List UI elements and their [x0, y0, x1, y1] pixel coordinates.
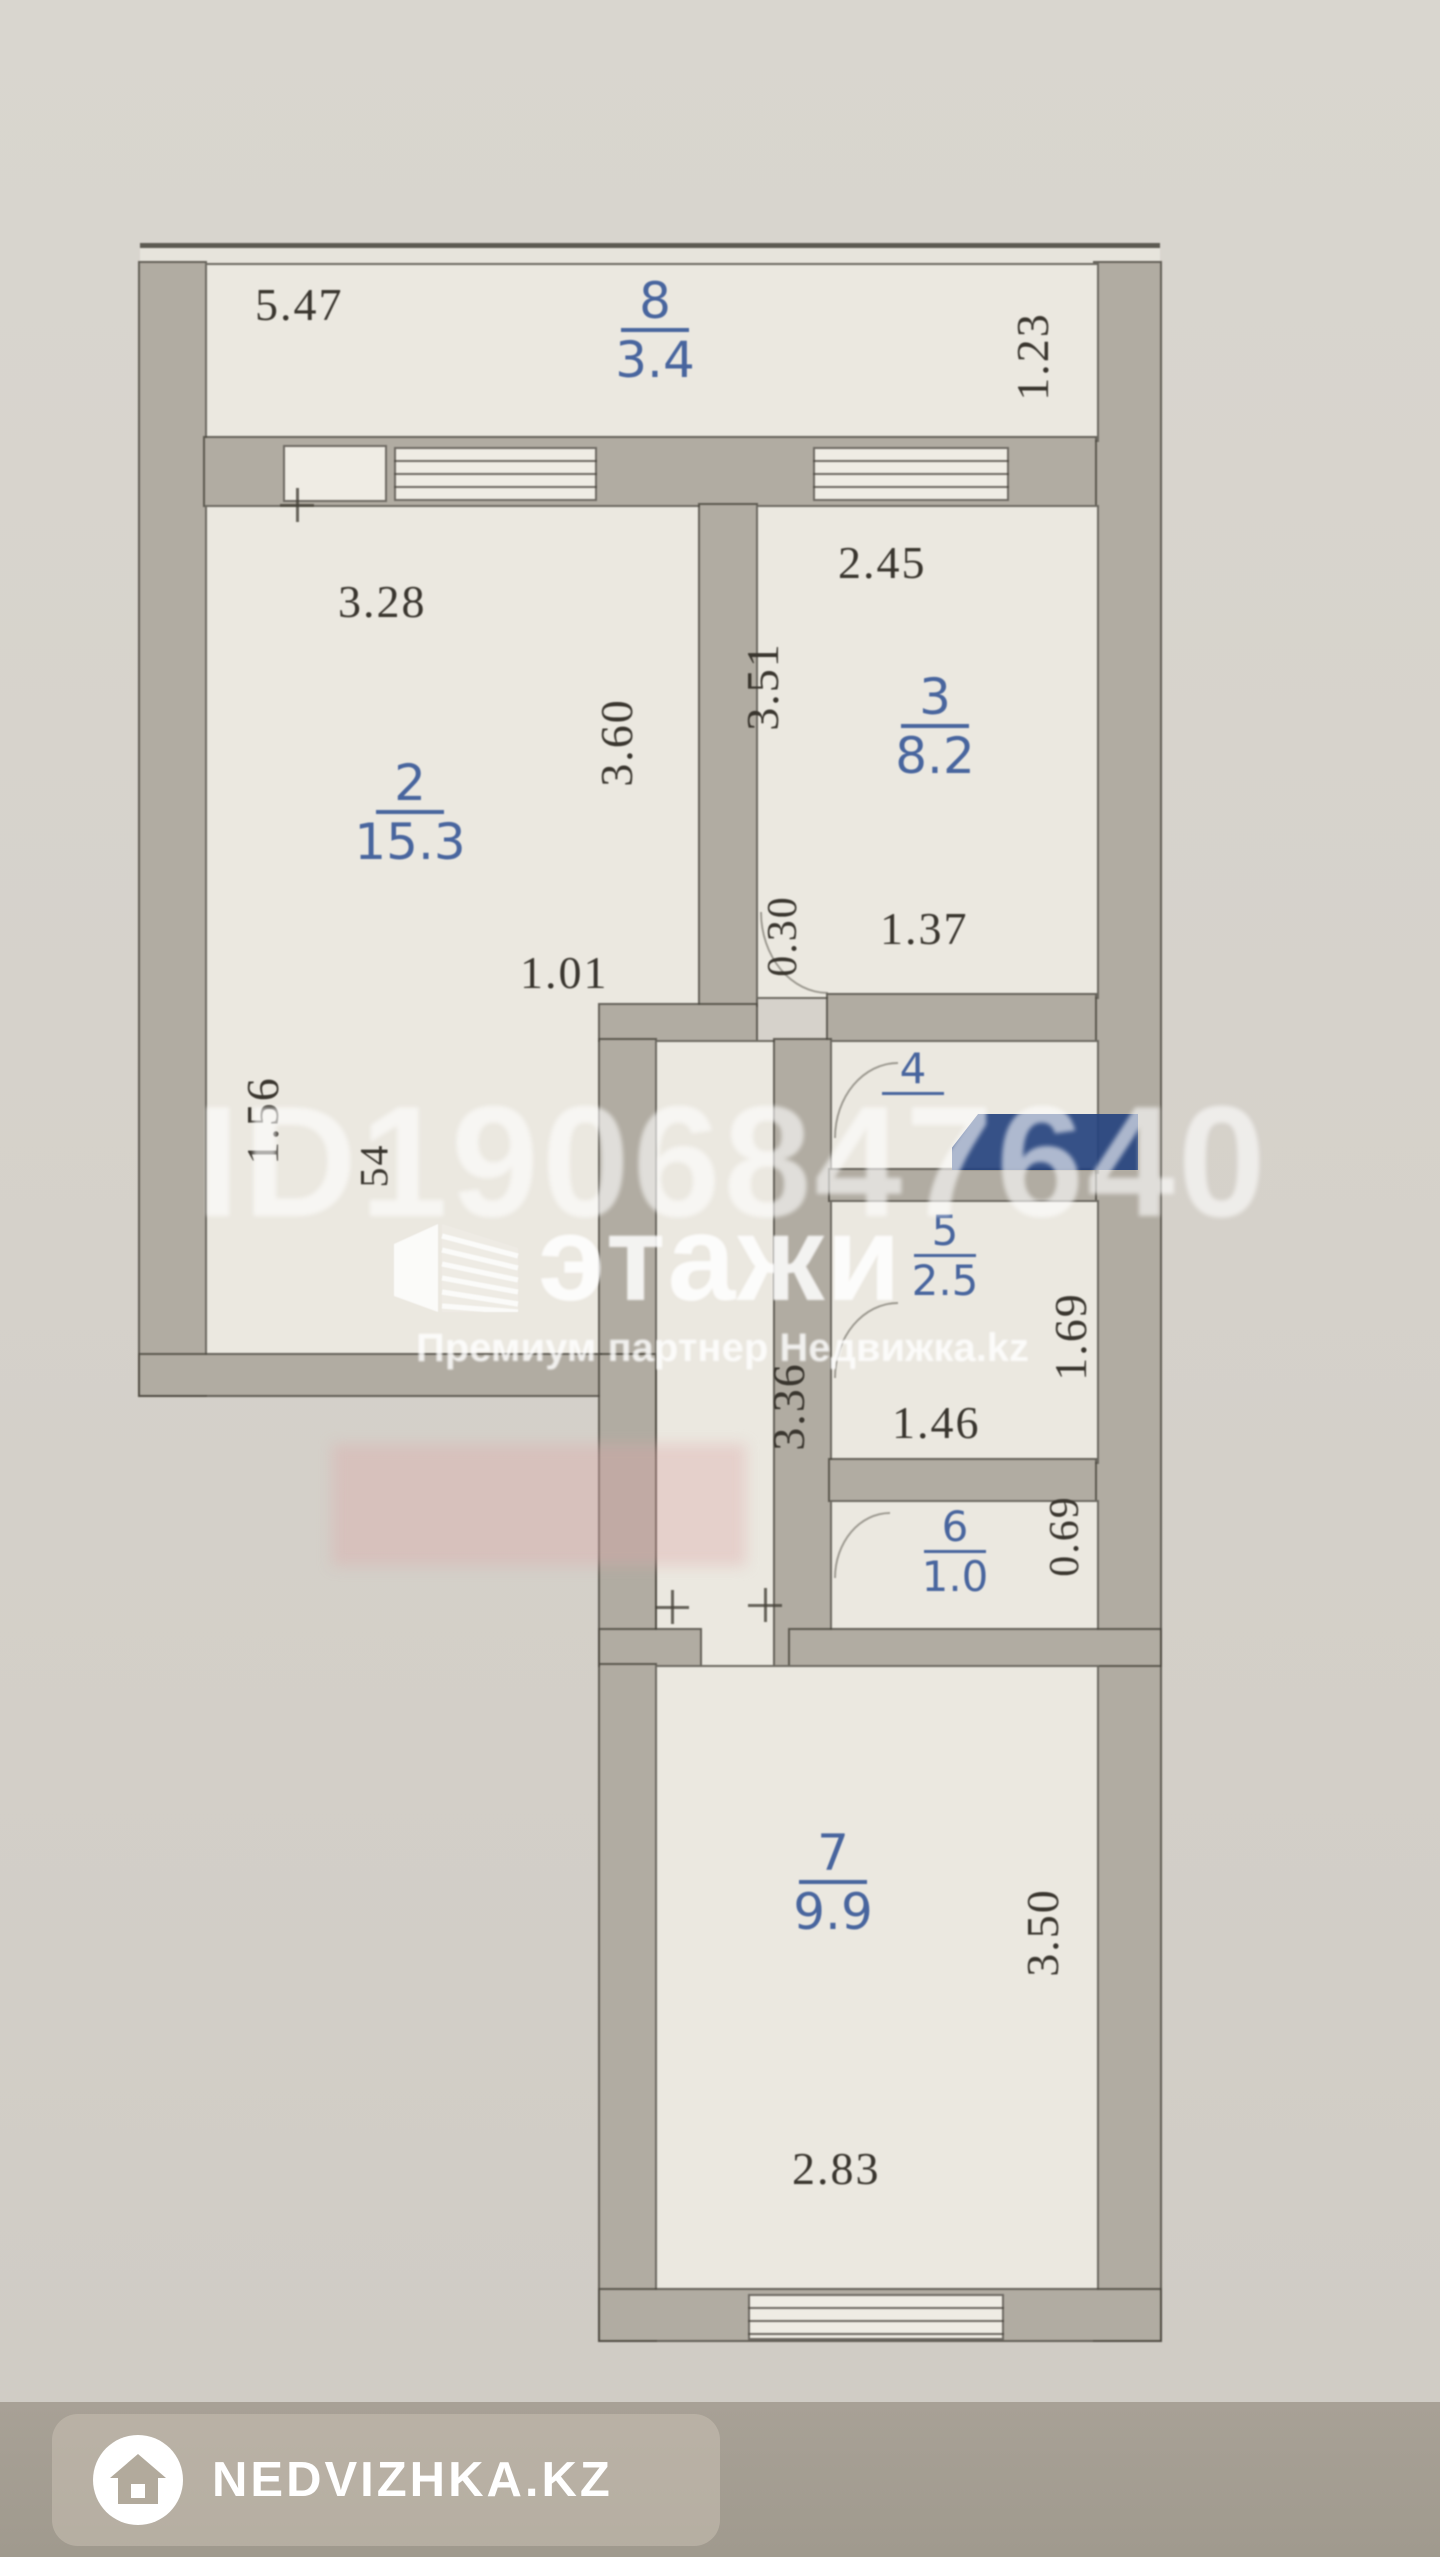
- redaction-stripe-pink: [332, 1444, 746, 1566]
- room6-label: 6 1.0: [900, 1506, 1010, 1601]
- dim-room7-height: 3.50: [1016, 1888, 1069, 1977]
- dim-balcony-depth: 1.23: [1006, 312, 1059, 401]
- building-icon: [394, 1212, 526, 1317]
- window-room3: [813, 447, 1009, 501]
- door-tick-mark: [655, 1590, 689, 1624]
- room8-label: 8 3.4: [590, 276, 720, 390]
- dim-room3-width: 2.45: [838, 536, 927, 589]
- room8-area: 3.4: [590, 332, 720, 390]
- room7-number: 7: [799, 1828, 867, 1884]
- room6-area: 1.0: [900, 1553, 1010, 1601]
- etazhi-logo-text: этажи: [538, 1188, 903, 1328]
- door-tick-mark: [280, 488, 314, 522]
- home-icon: [90, 2432, 186, 2528]
- etazhi-logo-subtitle: Премиум партнер Недвижка.kz: [416, 1326, 1076, 1371]
- dim-room5-width: 1.46: [892, 1396, 981, 1449]
- dim-room7-width: 2.83: [792, 2142, 881, 2195]
- right-outer-wall: [1095, 263, 1160, 2340]
- floorplan-photo: 5.47 1.23 3.28 2.45 3.51 3.60 1.01 1.37 …: [0, 0, 1440, 2557]
- dim-room6-height: 0.69: [1041, 1495, 1089, 1577]
- room3-number: 3: [901, 672, 969, 728]
- room7-area: 9.9: [768, 1884, 898, 1942]
- wall-room2-room3: [700, 505, 756, 1005]
- room6-number: 6: [924, 1506, 987, 1553]
- nedvizhka-badge: NEDVIZHKA.KZ: [52, 2414, 720, 2546]
- footer-bar: NEDVIZHKA.KZ: [0, 2402, 1440, 2557]
- room7-label: 7 9.9: [768, 1828, 898, 1942]
- dim-hall-height: 3.36: [762, 1362, 815, 1451]
- room2-label: 2 15.3: [340, 758, 480, 872]
- room3-bottom-wall: [828, 995, 1095, 1040]
- room-7: [655, 1665, 1099, 2294]
- window-room2: [394, 447, 597, 501]
- dim-balcony-width: 5.47: [255, 278, 344, 331]
- room2-number: 2: [376, 758, 444, 814]
- wall-room5-room6: [830, 1460, 1095, 1500]
- room2-area: 15.3: [340, 814, 480, 872]
- window-room7: [748, 2294, 1004, 2340]
- room7-top-wall-left: [600, 1630, 700, 1665]
- dim-room3-offset: 0.30: [759, 895, 807, 977]
- dim-room2-height: 3.60: [590, 698, 643, 787]
- room7-left-wall: [600, 1665, 655, 2340]
- room8-number: 8: [621, 276, 689, 332]
- room3-area: 8.2: [870, 728, 1000, 786]
- room7-top-wall-right: [790, 1630, 1160, 1665]
- footer-brand-text: NEDVIZHKA.KZ: [212, 2452, 613, 2508]
- dim-room2-door: 1.01: [520, 946, 609, 999]
- room3-label: 3 8.2: [870, 672, 1000, 786]
- room5-area: 2.5: [890, 1257, 1000, 1305]
- dim-room3-bottom: 1.37: [880, 902, 969, 955]
- dim-room2-width: 3.28: [338, 575, 427, 628]
- door-tick-mark: [748, 1588, 782, 1622]
- wall-room2-jog: [600, 1005, 756, 1040]
- dim-room3-height: 3.51: [736, 642, 789, 731]
